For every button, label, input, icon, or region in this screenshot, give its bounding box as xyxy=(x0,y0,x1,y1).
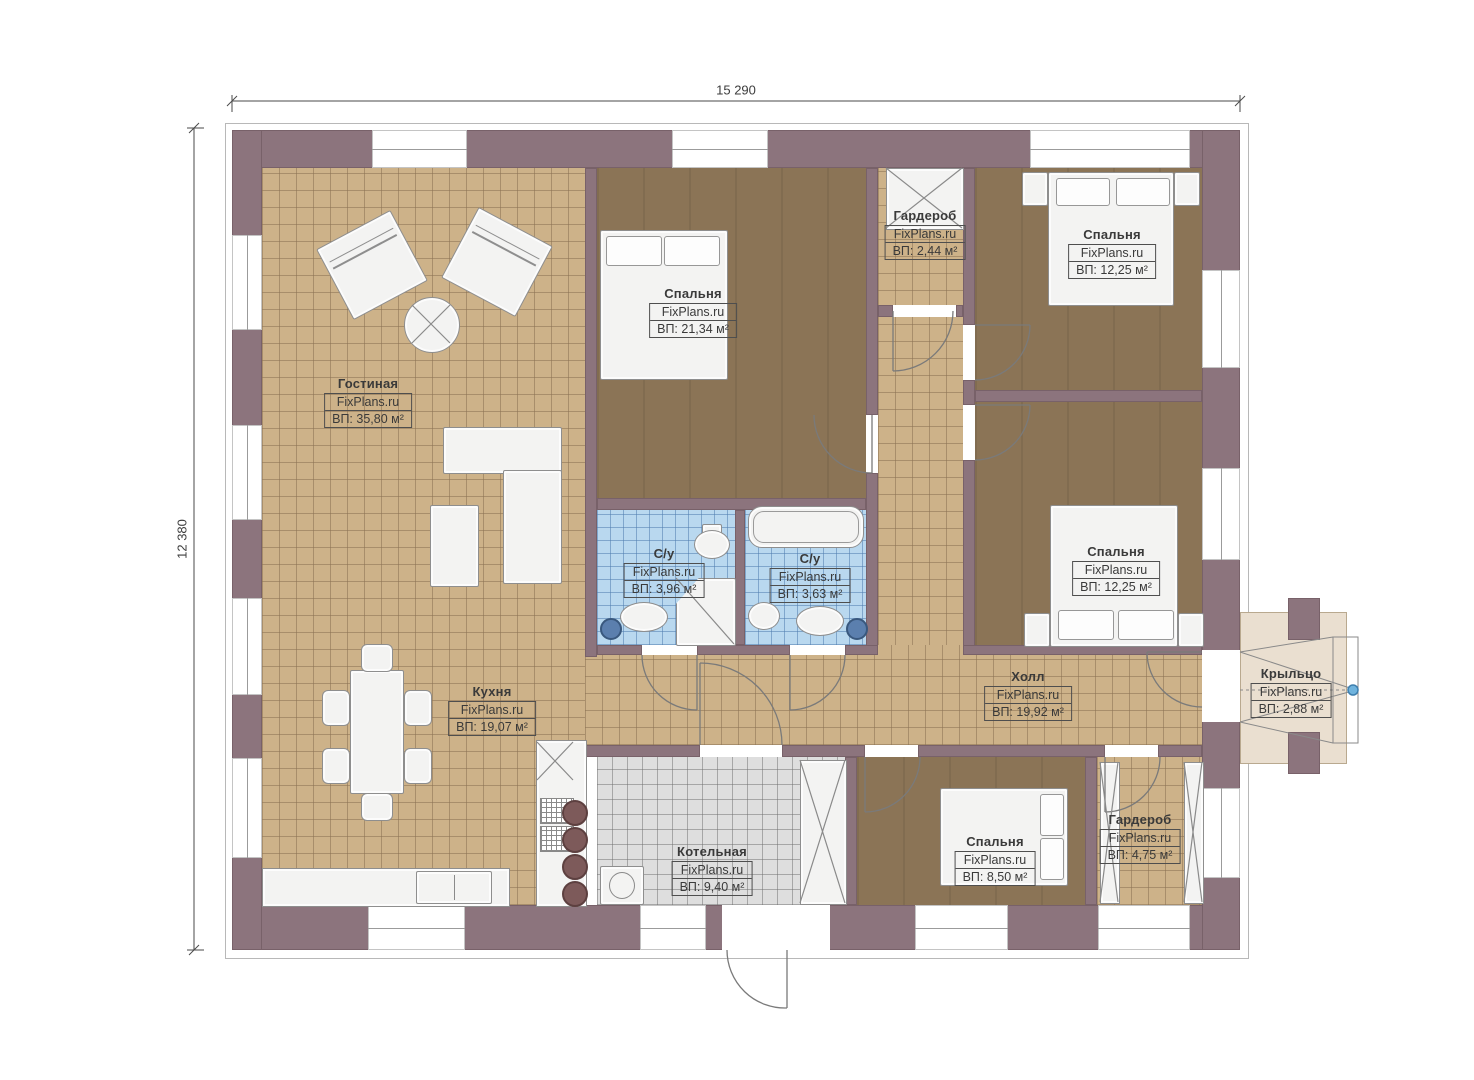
floor-plan: 15 290 12 380 Гостиная FixPlans.ru ВП: 3… xyxy=(0,0,1474,1080)
wardrobe-cabinet xyxy=(1184,762,1204,904)
room-label-hall: Холл FixPlans.ru ВП: 19,92 м² xyxy=(984,669,1072,721)
pillow xyxy=(664,236,720,266)
door-opening xyxy=(790,645,845,655)
pillow xyxy=(1118,610,1174,640)
room-label-living: Гостиная FixPlans.ru ВП: 35,80 м² xyxy=(324,376,412,428)
brand-watermark: FixPlans.ru xyxy=(985,687,1071,703)
door-opening xyxy=(866,415,878,473)
room-area: ВП: 2,88 м² xyxy=(1252,700,1331,717)
brand-watermark: FixPlans.ru xyxy=(449,702,535,718)
wall-interior xyxy=(845,645,878,655)
wall-interior xyxy=(735,510,745,645)
room-area: ВП: 35,80 м² xyxy=(325,410,411,427)
brand-watermark: FixPlans.ru xyxy=(1252,684,1331,700)
nightstand xyxy=(1022,172,1048,206)
drain xyxy=(600,618,622,640)
coffee-table xyxy=(430,505,479,587)
door-opening xyxy=(865,745,918,757)
room-label-bedroom-1: Спальня FixPlans.ru ВП: 21,34 м² xyxy=(649,286,737,338)
brand-watermark: FixPlans.ru xyxy=(1101,830,1180,846)
room-area: ВП: 12,25 м² xyxy=(1069,261,1155,278)
wall-interior xyxy=(866,168,878,415)
window xyxy=(1030,130,1190,168)
stove-knob xyxy=(562,854,588,880)
window xyxy=(368,905,465,950)
room-name: Гостиная xyxy=(324,376,412,391)
brand-watermark: FixPlans.ru xyxy=(1073,562,1159,578)
room-area: ВП: 3,96 м² xyxy=(625,580,704,597)
room-label-boiler: Котельная FixPlans.ru ВП: 9,40 м² xyxy=(672,844,753,896)
door-opening xyxy=(642,645,697,655)
door-opening xyxy=(963,405,975,460)
pillow xyxy=(1040,794,1064,836)
bathroom-sink xyxy=(620,602,668,632)
wall-interior xyxy=(975,390,1202,402)
chair xyxy=(361,793,393,821)
window xyxy=(915,905,1008,950)
door-opening xyxy=(1105,745,1158,757)
room-area: ВП: 8,50 м² xyxy=(956,868,1035,885)
door-opening xyxy=(700,745,782,757)
kitchen-sink xyxy=(416,871,492,904)
pillow xyxy=(1056,178,1110,206)
dimension-width-label: 15 290 xyxy=(716,83,756,98)
stove-knob xyxy=(562,827,588,853)
room-label-porch: Крыльцо FixPlans.ru ВП: 2,88 м² xyxy=(1251,666,1332,718)
pillow xyxy=(1040,838,1064,880)
wall-interior xyxy=(585,745,700,757)
nightstand xyxy=(1174,172,1200,206)
stove-knob xyxy=(562,881,588,907)
room-name: С/у xyxy=(624,546,705,561)
pillow xyxy=(1116,178,1170,206)
window xyxy=(1202,788,1240,878)
nightstand xyxy=(1178,613,1204,647)
window xyxy=(232,235,262,330)
room-label-bath-2: С/у FixPlans.ru ВП: 3,63 м² xyxy=(770,551,851,603)
window xyxy=(1202,468,1240,560)
room-area: ВП: 19,07 м² xyxy=(449,718,535,735)
brand-watermark: FixPlans.ru xyxy=(956,852,1035,868)
wall-interior xyxy=(597,645,642,655)
window xyxy=(232,758,262,858)
room-name: Кухня xyxy=(448,684,536,699)
brand-watermark: FixPlans.ru xyxy=(1069,245,1155,261)
room-label-wardrobe-2: Гардероб FixPlans.ru ВП: 4,75 м² xyxy=(1100,812,1181,864)
brand-watermark: FixPlans.ru xyxy=(625,564,704,580)
window xyxy=(672,130,768,168)
entrance-door-opening xyxy=(722,905,830,950)
wall-interior xyxy=(963,380,975,405)
drain xyxy=(846,618,868,640)
room-name: Спальня xyxy=(1068,227,1156,242)
porch-pillar-bottom xyxy=(1288,732,1320,774)
wall-interior xyxy=(1158,745,1202,757)
chair xyxy=(361,644,393,672)
door-opening xyxy=(893,305,956,317)
sofa-chaise xyxy=(503,470,562,584)
room-name: Спальня xyxy=(955,834,1036,849)
wall-interior xyxy=(878,305,893,317)
window xyxy=(372,130,467,168)
toilet xyxy=(748,602,780,630)
brand-watermark: FixPlans.ru xyxy=(886,226,965,242)
nightstand xyxy=(1024,613,1050,647)
washing-machine xyxy=(600,866,644,905)
door-opening xyxy=(963,325,975,380)
pillow xyxy=(1058,610,1114,640)
room-name: Спальня xyxy=(1072,544,1160,559)
wall-interior xyxy=(585,168,597,657)
room-label-bedroom-2: Спальня FixPlans.ru ВП: 12,25 м² xyxy=(1068,227,1156,279)
window xyxy=(1098,905,1190,950)
selection-handle[interactable] xyxy=(1348,685,1358,695)
pillow xyxy=(606,236,662,266)
room-name: Котельная xyxy=(672,844,753,859)
wall-interior xyxy=(1085,757,1097,905)
dimension-height-label: 12 380 xyxy=(175,519,190,559)
wall-interior xyxy=(697,645,790,655)
room-name: Гардероб xyxy=(885,208,966,223)
room-name: Холл xyxy=(984,669,1072,684)
bathroom-sink xyxy=(796,606,844,636)
dining-table xyxy=(350,670,404,794)
room-name: Спальня xyxy=(649,286,737,301)
bathtub xyxy=(748,506,864,548)
room-area: ВП: 12,25 м² xyxy=(1073,578,1159,595)
room-area: ВП: 9,40 м² xyxy=(673,878,752,895)
room-area: ВП: 3,63 м² xyxy=(771,585,850,602)
chair xyxy=(404,748,432,784)
room-name: Крыльцо xyxy=(1251,666,1332,681)
room-label-kitchen: Кухня FixPlans.ru ВП: 19,07 м² xyxy=(448,684,536,736)
brand-watermark: FixPlans.ru xyxy=(650,304,736,320)
porch-door-opening xyxy=(1202,650,1240,722)
wall-interior xyxy=(918,745,1105,757)
chair xyxy=(322,690,350,726)
window xyxy=(1202,270,1240,368)
window xyxy=(232,425,262,520)
wall-interior xyxy=(956,305,963,317)
room-label-bath-1: С/у FixPlans.ru ВП: 3,96 м² xyxy=(624,546,705,598)
room-area: ВП: 4,75 м² xyxy=(1101,846,1180,863)
sofa-section xyxy=(443,427,562,474)
floor-hall xyxy=(585,645,1202,745)
porch-pillar-top xyxy=(1288,598,1320,640)
brand-watermark: FixPlans.ru xyxy=(771,569,850,585)
room-area: ВП: 21,34 м² xyxy=(650,320,736,337)
tech-shaft xyxy=(800,760,847,905)
room-label-bedroom-3: Спальня FixPlans.ru ВП: 12,25 м² xyxy=(1072,544,1160,596)
round-table xyxy=(404,297,460,353)
chair xyxy=(322,748,350,784)
room-area: ВП: 2,44 м² xyxy=(886,242,965,259)
window xyxy=(640,905,706,950)
brand-watermark: FixPlans.ru xyxy=(673,862,752,878)
brand-watermark: FixPlans.ru xyxy=(325,394,411,410)
room-name: Гардероб xyxy=(1100,812,1181,827)
room-label-wardrobe-1: Гардероб FixPlans.ru ВП: 2,44 м² xyxy=(885,208,966,260)
room-name: С/у xyxy=(770,551,851,566)
room-area: ВП: 19,92 м² xyxy=(985,703,1071,720)
room-label-bedroom-4: Спальня FixPlans.ru ВП: 8,50 м² xyxy=(955,834,1036,886)
wall-interior xyxy=(963,460,975,648)
wall-interior xyxy=(782,745,865,757)
wall-interior xyxy=(866,473,878,648)
window xyxy=(232,598,262,695)
chair xyxy=(404,690,432,726)
stove-knob xyxy=(562,800,588,826)
